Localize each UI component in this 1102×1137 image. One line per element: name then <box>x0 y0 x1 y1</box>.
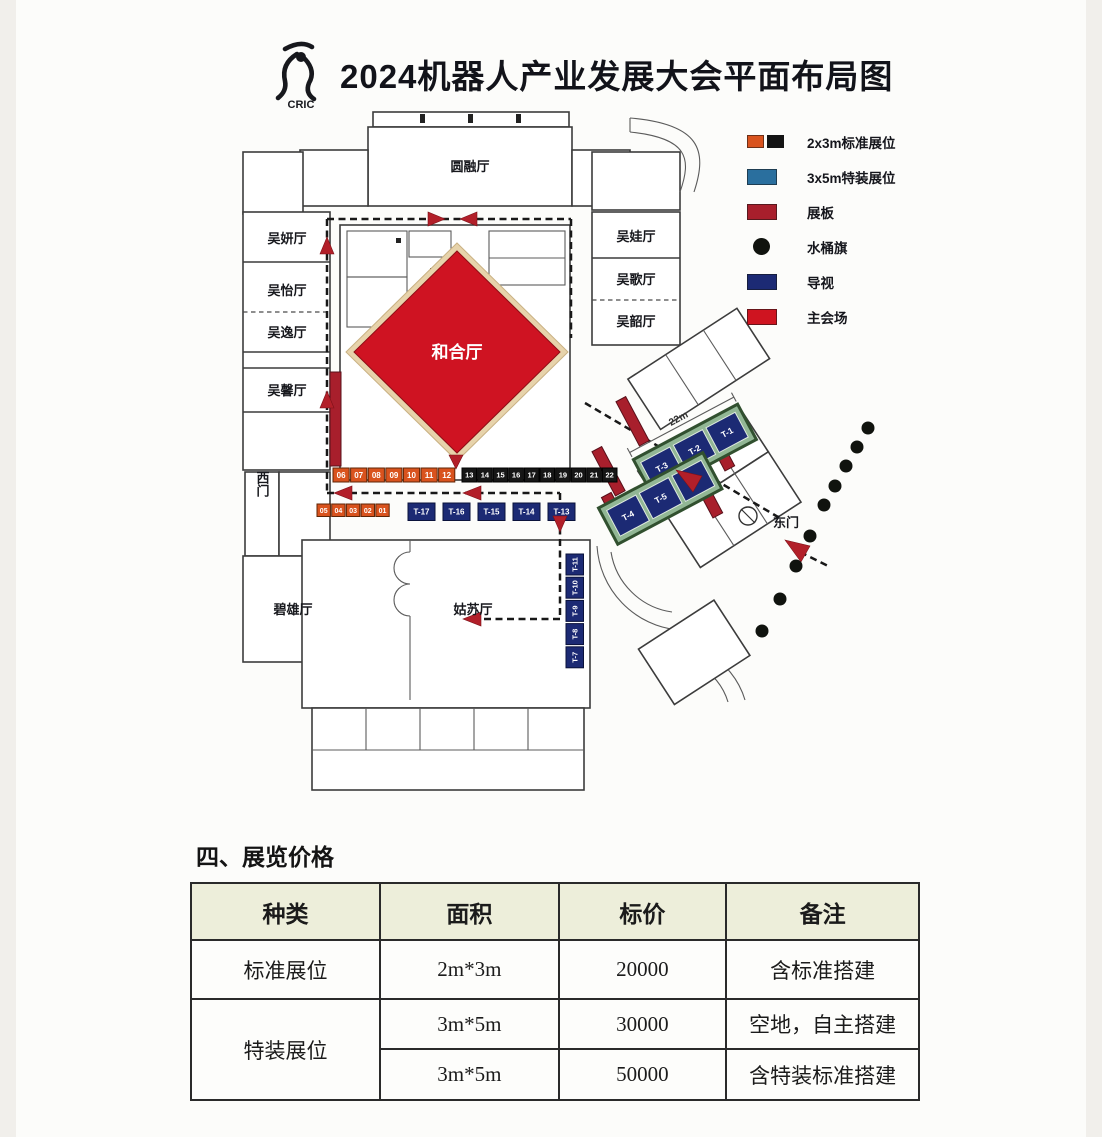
signage-row-horizontal: T-17T-16T-15T-14T-13 <box>408 503 575 521</box>
booth-label: T-16 <box>448 508 465 517</box>
hall-label-yuanrong: 圆融厅 <box>450 159 489 174</box>
hall-label-wuxin: 吴馨厅 <box>267 383 306 398</box>
west-gate-label: 西门 <box>255 471 270 498</box>
legend-label: 2x3m标准展位 <box>807 132 896 152</box>
col-header-area: 面积 <box>380 883 558 940</box>
hall-label-wuyi2: 吴逸厅 <box>267 325 306 340</box>
booth-label: 13 <box>465 471 473 480</box>
booth-label: T-11 <box>570 557 579 572</box>
hall-gusu-block <box>302 540 590 708</box>
signage-column-vertical: T-11T-10T-9T-8T-7 <box>566 554 584 668</box>
col-header-price: 标价 <box>559 883 727 940</box>
floor-plan: 和合厅 22m T-3T-2T-1 T-4T-5T-6 060708091011… <box>0 0 1102 820</box>
booth-label: 07 <box>354 471 363 480</box>
col-header-type: 种类 <box>191 883 380 940</box>
cell-price: 20000 <box>559 940 727 999</box>
legend-item-standard-booth: 2x3m标准展位 <box>747 124 896 159</box>
cell-note: 含特装标准搭建 <box>726 1049 919 1100</box>
standard-booth-row-orange: 06070809101112 <box>333 468 455 482</box>
hall-label-bixiong: 碧雄厅 <box>272 602 312 617</box>
cell-type: 标准展位 <box>191 940 380 999</box>
hall-label-hehe: 和合厅 <box>432 342 483 362</box>
booth-label: T-17 <box>413 508 430 517</box>
header: CRIC 2024机器人产业发展大会平面布局图 <box>270 38 893 110</box>
cell-price: 30000 <box>559 999 727 1049</box>
page-title: 2024机器人产业发展大会平面布局图 <box>340 50 893 98</box>
booth-label: 18 <box>543 471 551 480</box>
booth-label: 03 <box>349 508 357 515</box>
left-hall-column <box>243 212 330 470</box>
poster-page: 和合厅 22m T-3T-2T-1 T-4T-5T-6 060708091011… <box>0 0 1102 1137</box>
legend-item-bucket-flag: 水桶旗 <box>747 229 896 264</box>
cell-price: 50000 <box>559 1049 727 1100</box>
booth-label: 16 <box>512 471 520 480</box>
booth-label: 14 <box>481 471 490 480</box>
cell-area: 3m*5m <box>380 999 558 1049</box>
cell-note: 空地，自主搭建 <box>726 999 919 1049</box>
display-board-swatch <box>747 204 791 220</box>
cell-area: 2m*3m <box>380 940 558 999</box>
booth-label: 10 <box>407 471 416 480</box>
legend-label: 主会场 <box>807 307 848 327</box>
booth-label: T-7 <box>570 652 579 663</box>
booth-label: 02 <box>364 508 372 515</box>
main-venue-swatch <box>747 309 791 325</box>
booth-label: 09 <box>389 471 398 480</box>
booth-label: 19 <box>559 471 567 480</box>
booth-label: 17 <box>528 471 536 480</box>
hall-label-wuge: 吴歌厅 <box>616 272 655 287</box>
standard-booth-swatch <box>747 135 791 148</box>
standard-booth-row-small: 0504030201 <box>317 504 389 517</box>
hall-label-wuwa: 吴娃厅 <box>616 229 655 244</box>
booth-label: T-9 <box>570 605 579 616</box>
cell-type: 特装展位 <box>191 999 380 1100</box>
booth-label: 05 <box>320 508 328 515</box>
booth-label: T-13 <box>553 508 570 517</box>
legend-item-main-venue: 主会场 <box>747 299 896 334</box>
legend-label: 水桶旗 <box>807 237 848 257</box>
table-row: 特装展位 3m*5m 30000 空地，自主搭建 <box>191 999 919 1049</box>
legend-label: 导视 <box>807 272 834 292</box>
legend: 2x3m标准展位3x5m特装展位展板水桶旗导视主会场 <box>747 124 896 334</box>
logo-text: CRIC <box>288 99 315 110</box>
east-gate-label: 东门 <box>773 515 799 530</box>
booth-label: 21 <box>590 471 598 480</box>
legend-item-special-booth: 3x5m特装展位 <box>747 159 896 194</box>
standard-booth-row-black: 13141516171819202122 <box>462 468 617 482</box>
pricing-table: 种类 面积 标价 备注 标准展位 2m*3m 20000 含标准搭建 特装展位 … <box>190 882 920 1101</box>
legend-item-display-board: 展板 <box>747 194 896 229</box>
special-booth-swatch <box>747 169 791 185</box>
table-row: 标准展位 2m*3m 20000 含标准搭建 <box>191 940 919 999</box>
booth-label: 08 <box>372 471 381 480</box>
hall-label-wushao: 吴韶厅 <box>616 314 655 329</box>
legend-label: 展板 <box>807 202 834 222</box>
booth-label: T-10 <box>570 580 579 595</box>
cric-logo: CRIC <box>270 38 332 110</box>
booth-label: 15 <box>496 471 504 480</box>
pricing-section-title: 四、展览价格 <box>196 838 334 872</box>
booth-label: 01 <box>379 508 387 515</box>
legend-item-signage: 导视 <box>747 264 896 299</box>
booth-label: 06 <box>337 471 346 480</box>
hall-label-wuyan: 吴妍厅 <box>267 231 306 246</box>
booth-label: T-14 <box>518 508 535 517</box>
booth-label: 04 <box>335 508 343 515</box>
bucket-flag-swatch <box>747 238 791 255</box>
booth-label: 11 <box>425 471 434 480</box>
booth-label: 22 <box>606 471 614 480</box>
hall-label-gusu: 姑苏厅 <box>453 602 492 617</box>
booth-label: T-8 <box>570 629 579 640</box>
cell-area: 3m*5m <box>380 1049 558 1100</box>
col-header-note: 备注 <box>726 883 919 940</box>
booth-label: 20 <box>574 471 582 480</box>
legend-label: 3x5m特装展位 <box>807 167 896 187</box>
booth-label: T-15 <box>483 508 500 517</box>
booth-label: 12 <box>442 471 451 480</box>
cell-note: 含标准搭建 <box>726 940 919 999</box>
hall-label-wuyi: 吴怡厅 <box>267 283 306 298</box>
signage-swatch <box>747 274 791 290</box>
